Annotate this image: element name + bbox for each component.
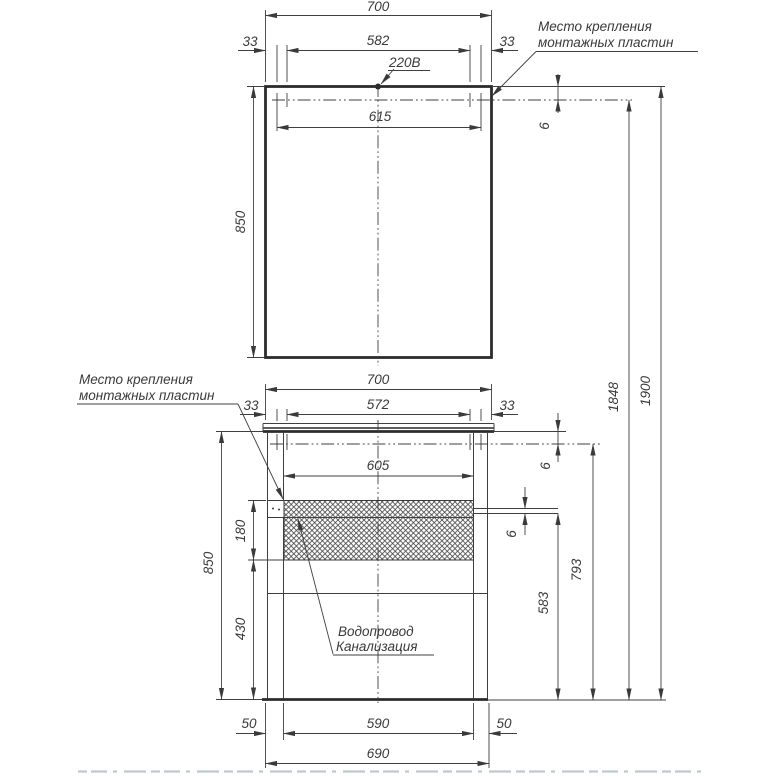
dim-base-offset-left: 50 xyxy=(241,716,257,731)
plate-hole xyxy=(278,509,280,511)
dim-cabinet-offset-left: 33 xyxy=(243,398,259,413)
mirror-unit: 220В 700 582 33 33 615 850 6 Мес xyxy=(233,0,698,366)
power-label: 220В xyxy=(388,55,421,70)
power-outlet-point xyxy=(375,84,381,90)
dim-base-offset-right: 50 xyxy=(496,716,512,731)
dim-base-width: 690 xyxy=(367,746,390,761)
mount-label-top-line2: монтажных пластин xyxy=(538,35,674,50)
dim-cabinet-strip-height: 180 xyxy=(233,519,248,542)
mount-label-top-line1: Место крепления xyxy=(538,19,652,34)
countertop xyxy=(263,424,494,433)
mount-label-left-line2: монтажных пластин xyxy=(79,388,215,403)
dim-mirror-hole-span: 615 xyxy=(369,109,392,124)
plumbing-label-line2: Канализация xyxy=(336,639,417,654)
technical-drawing-page: 220В 700 582 33 33 615 850 6 Мес xyxy=(0,0,776,776)
overall-dimensions: 1848 1900 xyxy=(488,87,666,701)
dim-cabinet-plate-thickness: 6 xyxy=(504,530,519,538)
service-zone-hatch xyxy=(284,501,474,561)
dim-mirror-plate-span: 582 xyxy=(367,33,390,48)
dim-cabinet-plate-span: 572 xyxy=(367,397,390,412)
dim-base-foot-span: 590 xyxy=(367,716,390,731)
dim-mirror-offset-right: 33 xyxy=(499,34,515,49)
dim-cabinet-rail-height: 793 xyxy=(569,558,584,581)
mount-label-left-leader xyxy=(238,404,283,499)
dim-overall-total-height: 1900 xyxy=(638,375,653,406)
dim-overall-rail-height: 1848 xyxy=(606,381,621,412)
cabinet-unit: 700 572 33 33 xyxy=(77,372,601,703)
dim-cabinet-plate-height: 583 xyxy=(536,591,551,614)
base-dimensions: 590 50 50 690 xyxy=(236,703,517,768)
mounting-plate-left xyxy=(268,501,285,518)
dim-cabinet-hole-span: 605 xyxy=(367,458,390,473)
mount-label-left-line1: Место крепления xyxy=(79,372,193,387)
furniture-installation-drawing: 220В 700 582 33 33 615 850 6 Мес xyxy=(0,0,776,776)
dim-mirror-total-width: 700 xyxy=(367,0,390,14)
dim-cabinet-lower-zone: 430 xyxy=(233,617,248,640)
dim-cabinet-height: 850 xyxy=(201,551,216,574)
dim-mirror-height: 850 xyxy=(233,210,248,233)
dim-mirror-offset-left: 33 xyxy=(242,34,258,49)
dim-cabinet-top-inset: 6 xyxy=(538,462,553,470)
dim-cabinet-offset-right: 33 xyxy=(499,398,515,413)
mount-label-top-leader xyxy=(492,52,536,97)
dim-mirror-rail-inset: 6 xyxy=(537,122,552,130)
dim-cabinet-total-width: 700 xyxy=(367,372,390,387)
plate-hole xyxy=(272,508,274,510)
plumbing-label-line1: Водопровод xyxy=(338,624,414,639)
power-leader-line xyxy=(381,69,394,84)
